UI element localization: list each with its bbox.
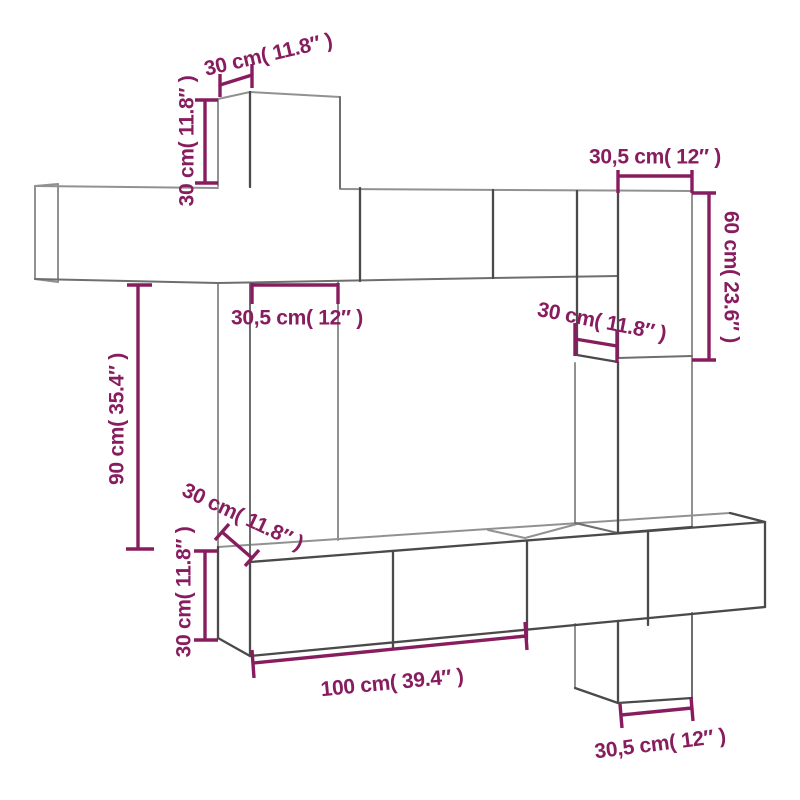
dim-line-middle-gap-height <box>126 285 154 549</box>
dimension-labels: 30 cm( 11.8″ ) 30 cm( 11.8″ ) 30,5 cm( 1… <box>105 29 742 763</box>
dim-line-top-box-height <box>195 100 218 183</box>
dim-line-tv-bench-width <box>252 622 527 678</box>
dim-label-mid-right-box-height: 30 cm( 11.8″ ) <box>535 298 668 346</box>
dim-label-top-box-height: 30 cm( 11.8″ ) <box>175 76 198 207</box>
dim-label-top-box-depth: 30 cm( 11.8″ ) <box>202 29 335 81</box>
dim-line-right-box-height <box>692 193 716 360</box>
dim-label-bottom-right-box-width: 30,5 cm( 12″ ) <box>593 724 727 763</box>
dim-label-bottom-left-box-depth: 30 cm( 11.8″ ) <box>179 479 307 555</box>
dim-label-top-right-box-width: 30,5 cm( 12″ ) <box>589 145 721 168</box>
furniture-dimension-diagram: 30 cm( 11.8″ ) 30 cm( 11.8″ ) 30,5 cm( 1… <box>0 0 800 800</box>
dim-label-tv-bench-width: 100 cm( 39.4″ ) <box>320 665 465 702</box>
dim-label-left-column-width: 30,5 cm( 12″ ) <box>231 306 363 329</box>
drawing-front-edges <box>218 92 765 703</box>
dim-label-bottom-left-box-height: 30 cm( 11.8″ ) <box>172 527 195 658</box>
dim-line-top-right-box-width <box>618 170 692 193</box>
dim-line-left-column-width <box>252 283 338 304</box>
furniture-line-drawing <box>35 92 765 703</box>
diagram-canvas: 30 cm( 11.8″ ) 30 cm( 11.8″ ) 30,5 cm( 1… <box>0 0 800 800</box>
dim-line-bottom-left-box-height <box>194 551 218 640</box>
dim-label-middle-gap-height: 90 cm( 35.4″ ) <box>105 353 128 485</box>
dim-label-right-box-height: 60 cm( 23.6″ ) <box>720 211 743 343</box>
